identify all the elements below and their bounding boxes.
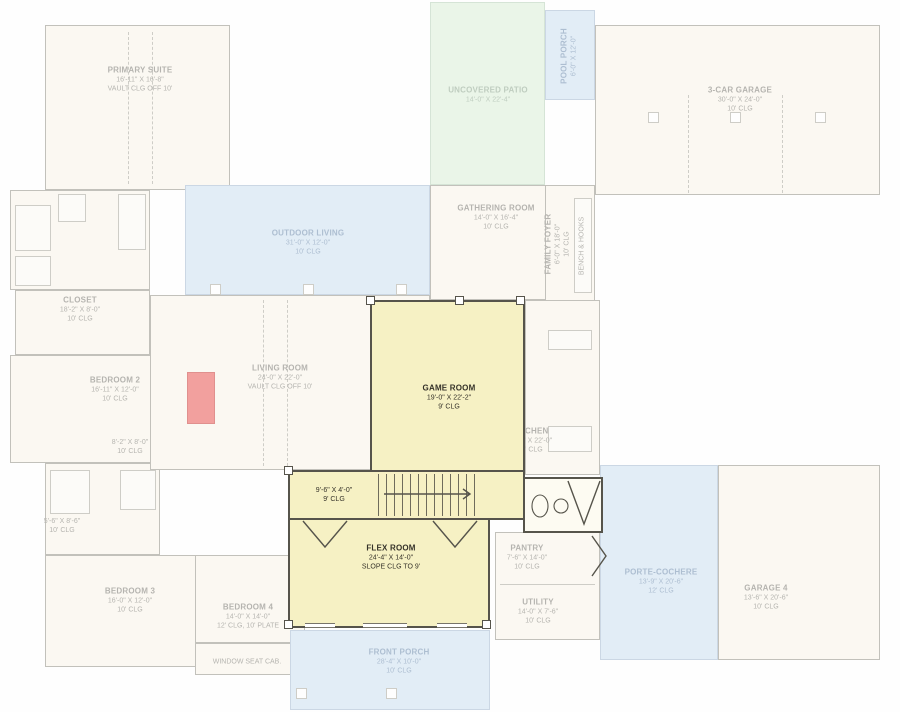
door-swing-overlay [0, 0, 900, 712]
room-dims: 19'-0" X 22'-2" [423, 394, 476, 403]
floor-plan: PRIMARY SUITE 16'-11" X 16'-8" VAULT CLG… [0, 0, 900, 712]
door-swing [568, 481, 600, 524]
room-dims: 9'-6" X 4'-0" [316, 486, 352, 495]
toilet-fixture [532, 495, 548, 517]
room-label-hall: 9'-6" X 4'-0" 9' CLG [316, 486, 352, 504]
sink-fixture [554, 499, 568, 513]
room-name: FLEX ROOM [362, 544, 420, 554]
room-label-flex-room: FLEX ROOM 24'-4" X 14'-0" SLOPE CLG TO 9… [362, 544, 420, 573]
room-clg: SLOPE CLG TO 9' [362, 563, 420, 572]
door-swing [303, 521, 347, 547]
room-clg: 9' CLG [423, 403, 476, 412]
room-clg: 9' CLG [316, 495, 352, 504]
highlight-layer: GAME ROOM 19'-0" X 22'-2" 9' CLG 9'-6" X… [0, 0, 900, 712]
room-label-game-room: GAME ROOM 19'-0" X 22'-2" 9' CLG [423, 384, 476, 413]
room-name: GAME ROOM [423, 384, 476, 394]
room-dims: 24'-4" X 14'-0" [362, 554, 420, 563]
door-swing [433, 521, 477, 547]
door-swing [592, 536, 606, 576]
